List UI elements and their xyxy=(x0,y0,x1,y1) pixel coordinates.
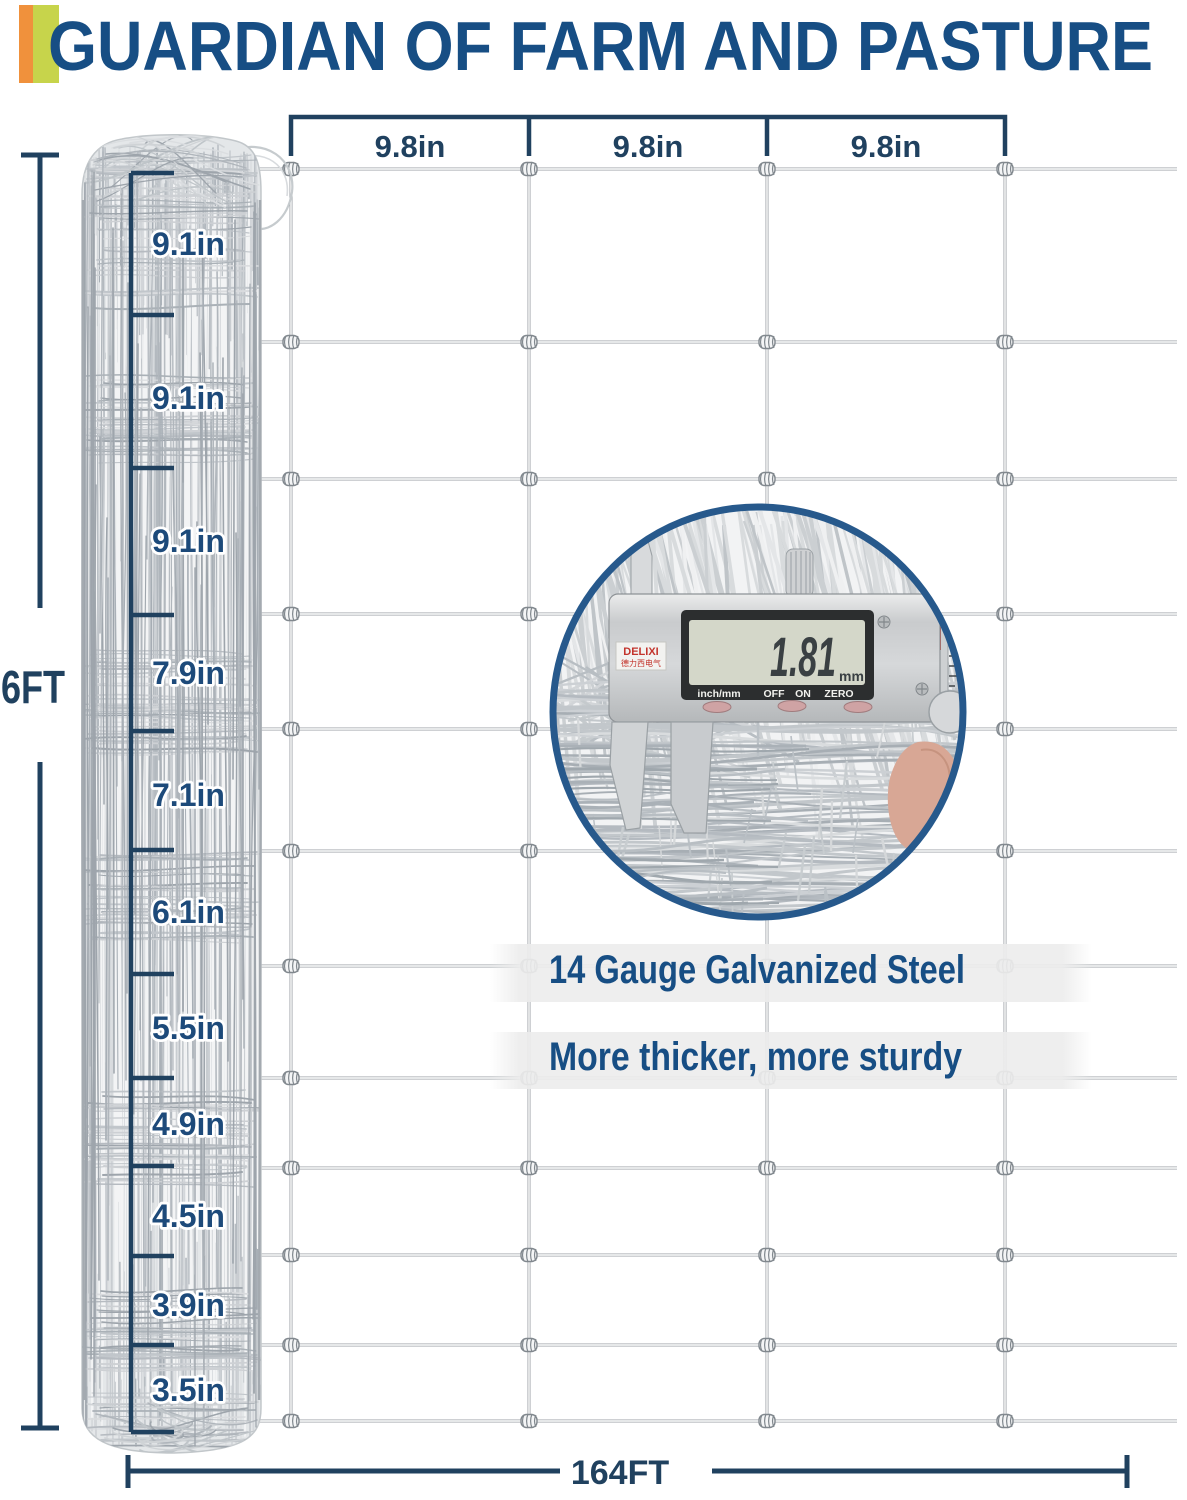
svg-text:4.5in: 4.5in xyxy=(152,1198,225,1234)
svg-text:9.8in: 9.8in xyxy=(851,129,922,164)
svg-text:9.8in: 9.8in xyxy=(375,129,446,164)
svg-text:7.9in: 7.9in xyxy=(152,655,225,691)
svg-text:164FT: 164FT xyxy=(571,1454,669,1492)
svg-text:6.1in: 6.1in xyxy=(152,894,225,930)
svg-text:9.1in: 9.1in xyxy=(152,380,225,416)
svg-text:DELIXI: DELIXI xyxy=(623,646,658,658)
svg-text:4.9in: 4.9in xyxy=(152,1106,225,1142)
svg-text:3.5in: 3.5in xyxy=(152,1372,225,1408)
svg-text:OFF: OFF xyxy=(764,688,786,700)
svg-text:5.5in: 5.5in xyxy=(152,1010,225,1046)
svg-text:德力西电气: 德力西电气 xyxy=(621,658,661,668)
svg-text:9.1in: 9.1in xyxy=(152,226,225,262)
svg-text:9.8in: 9.8in xyxy=(613,129,684,164)
svg-text:inch/mm: inch/mm xyxy=(697,688,740,700)
svg-text:ON: ON xyxy=(795,688,811,700)
svg-text:More thicker, more sturdy: More thicker, more sturdy xyxy=(549,1035,963,1079)
svg-text:9.1in: 9.1in xyxy=(152,523,225,559)
svg-text:6FT: 6FT xyxy=(1,661,65,713)
svg-text:mm: mm xyxy=(839,668,864,684)
svg-text:7.1in: 7.1in xyxy=(152,777,225,813)
svg-text:14 Gauge Galvanized Steel: 14 Gauge Galvanized Steel xyxy=(549,948,965,992)
svg-text:1.81: 1.81 xyxy=(770,625,836,688)
svg-text:3.9in: 3.9in xyxy=(152,1287,225,1323)
svg-text:GUARDIAN OF FARM AND PASTURE: GUARDIAN OF FARM AND PASTURE xyxy=(48,7,1153,85)
svg-text:ZERO: ZERO xyxy=(824,688,853,700)
